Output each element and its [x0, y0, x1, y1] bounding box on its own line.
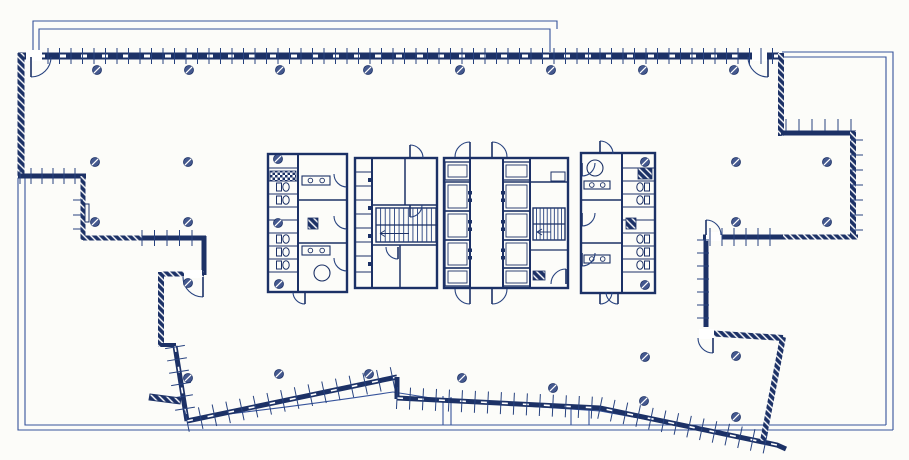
mullion-ticks	[20, 48, 863, 453]
floor-plan-drawing[interactable]	[0, 0, 909, 460]
building-core	[85, 153, 655, 404]
blueprint-sheet	[0, 0, 909, 460]
property-roof-lines	[18, 21, 893, 441]
